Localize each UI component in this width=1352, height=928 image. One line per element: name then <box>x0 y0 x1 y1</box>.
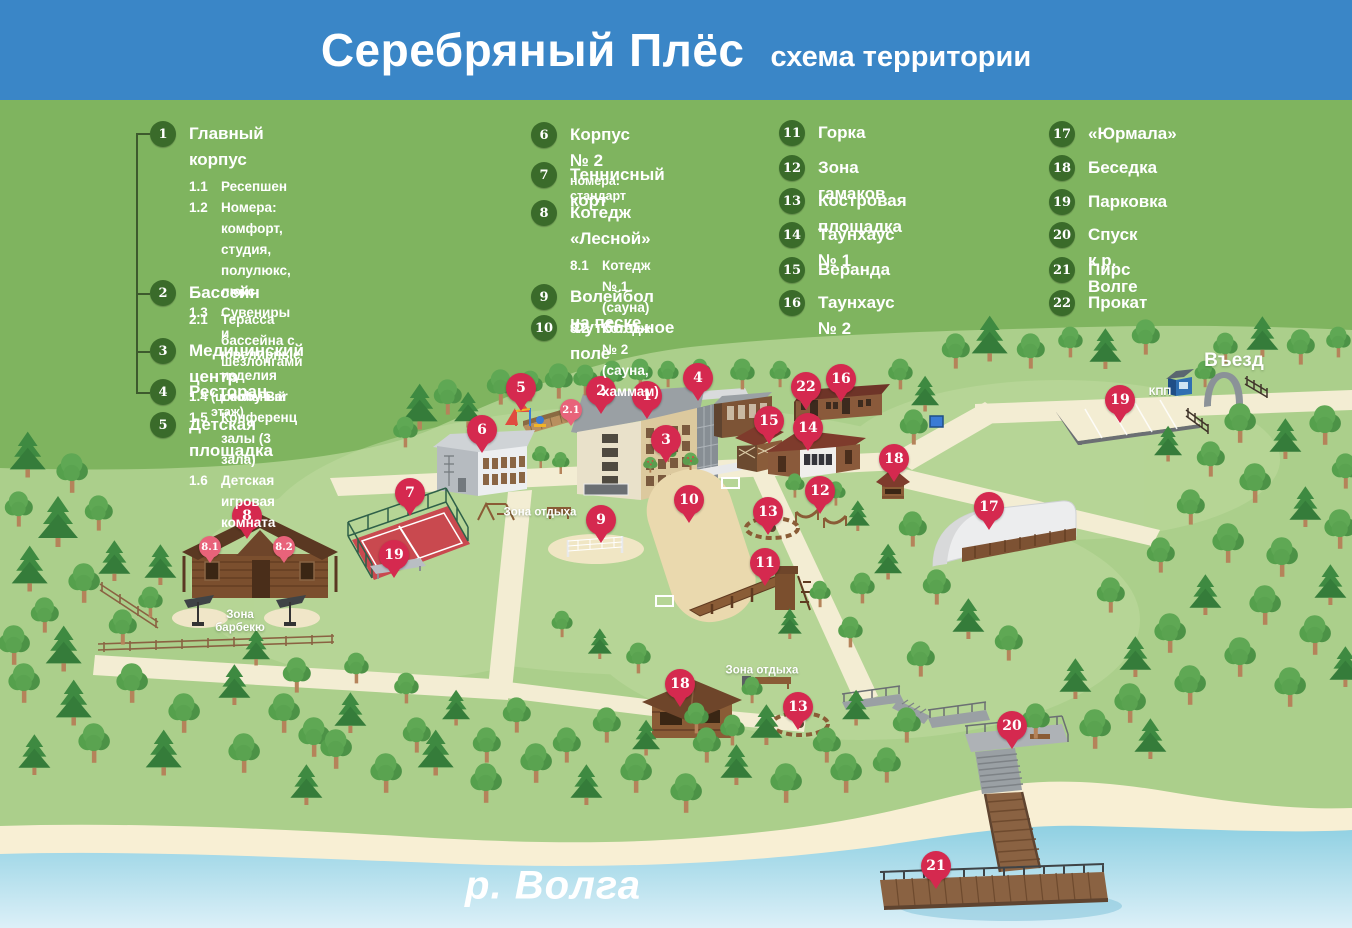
map-objects <box>0 0 1352 928</box>
volleyball-court <box>548 534 644 564</box>
legend-bracket-stub <box>136 293 150 295</box>
page-subtitle: схема территории <box>771 41 1032 74</box>
townhouse-1-building <box>766 430 866 478</box>
corpus-2-building <box>433 430 535 496</box>
legend-bracket-line <box>136 133 138 393</box>
trash-container <box>930 416 943 427</box>
wooden-stairs <box>985 792 1040 872</box>
gazebo-big <box>642 680 742 738</box>
fire-pit <box>746 518 798 538</box>
entrance-arch <box>1186 372 1267 434</box>
page-title: Серебряный Плёс <box>321 0 745 100</box>
map-header: Серебряный Плёс схема территории <box>0 0 1352 100</box>
stairs-to-river <box>842 686 1068 794</box>
legend-bracket-stub <box>136 392 150 394</box>
townhouse-2-building <box>794 384 890 422</box>
bbq-zone <box>172 595 320 628</box>
legend-bracket-stub <box>136 351 150 353</box>
cottage-lesnoy <box>182 514 338 598</box>
hammock-zone <box>796 510 846 528</box>
legend-bracket-stub <box>136 133 150 135</box>
yurmala-hangar <box>933 501 1076 566</box>
kpp-booth <box>1166 369 1194 396</box>
fire-pit <box>772 713 828 735</box>
parking-lot-entrance <box>1056 396 1200 445</box>
territory-map-poster: Серебряный Плёс схема территории <box>0 0 1352 928</box>
pier <box>880 864 1108 910</box>
gazebo-small <box>876 468 910 499</box>
